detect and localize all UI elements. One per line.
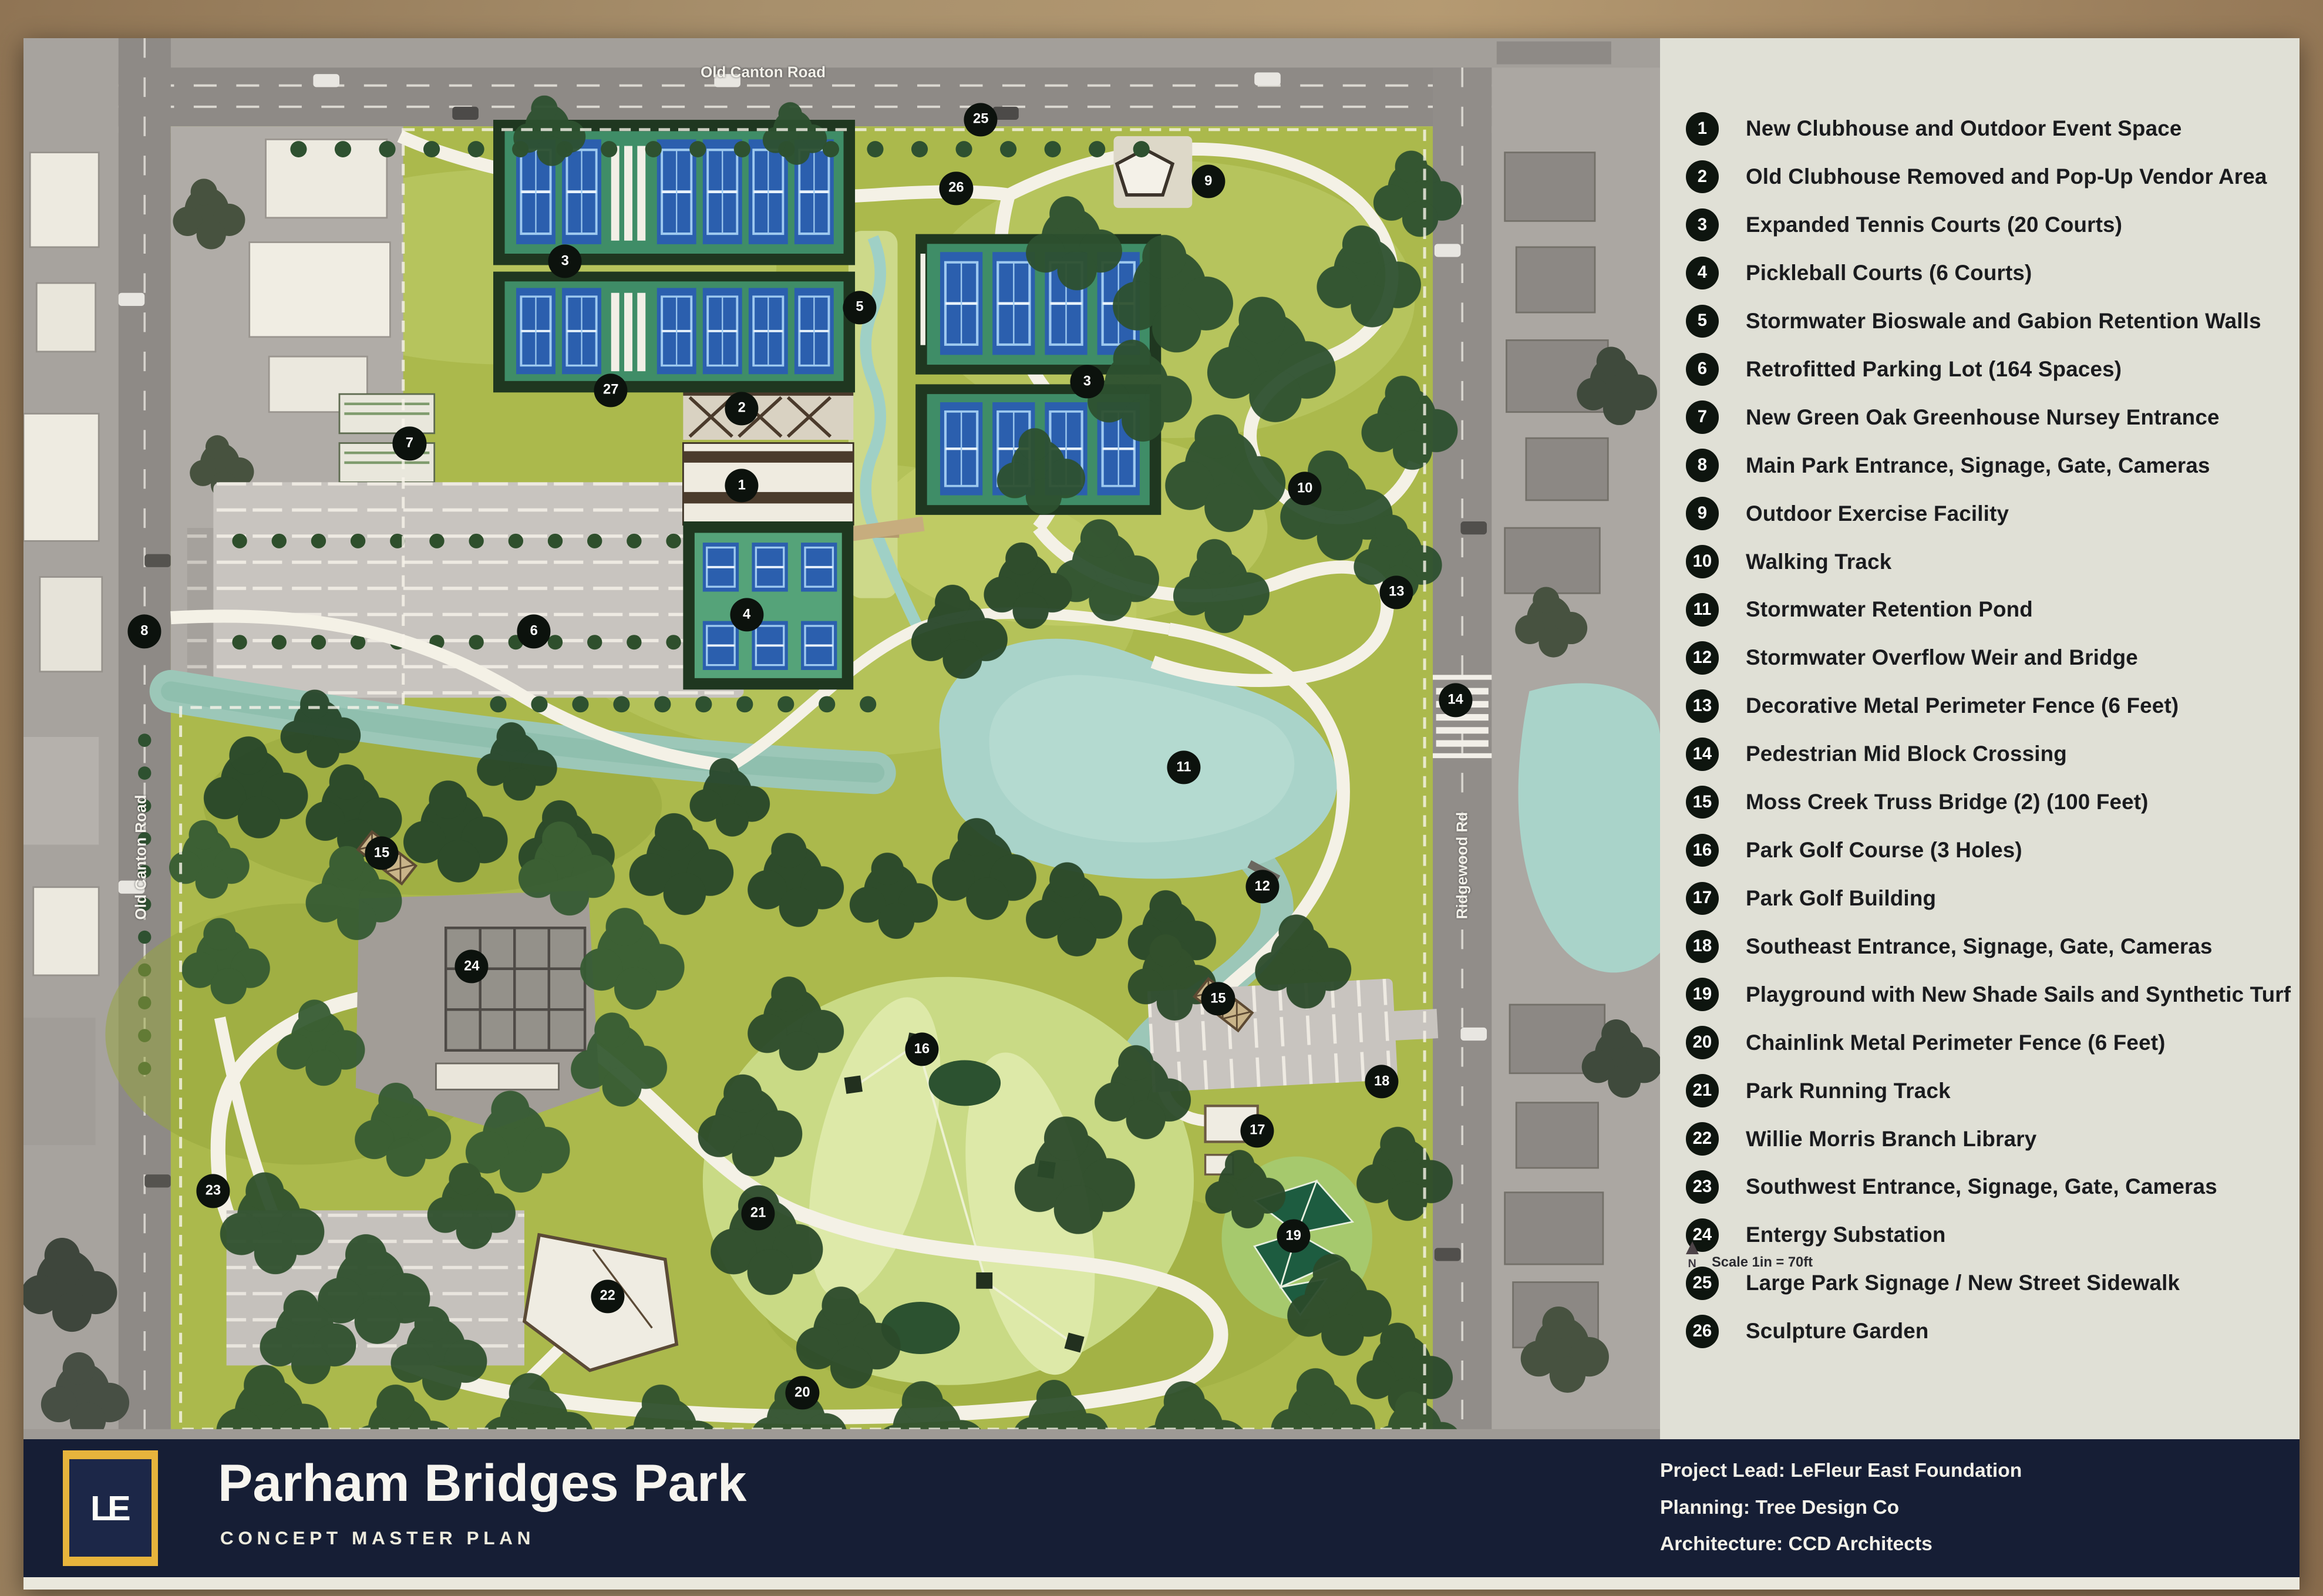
road-label: Old Canton Road bbox=[132, 794, 150, 920]
legend-item-number: 7 bbox=[1686, 400, 1719, 434]
legend-item-number: 14 bbox=[1686, 738, 1719, 771]
north-arrow-icon bbox=[1686, 1241, 1699, 1254]
new-clubhouse bbox=[683, 443, 853, 525]
poster-title: Parham Bridges Park bbox=[218, 1453, 746, 1513]
credit-line: Planning: Tree Design Co bbox=[1660, 1490, 2022, 1526]
legend-item-number: 2 bbox=[1686, 160, 1719, 194]
legend-item-number: 26 bbox=[1686, 1315, 1719, 1348]
map-marker-19: 19 bbox=[1277, 1219, 1310, 1252]
credit-line: Architecture: CCD Architects bbox=[1660, 1526, 2022, 1563]
concept-master-plan-poster: 1233456789101112131415151617181920212223… bbox=[23, 38, 2300, 1590]
legend-item: 21Park Running Track bbox=[1660, 1070, 2300, 1111]
project-credits: Project Lead: LeFleur East FoundationPla… bbox=[1660, 1453, 2022, 1563]
map-marker-6: 6 bbox=[517, 615, 551, 648]
legend-item: 23Southwest Entrance, Signage, Gate, Cam… bbox=[1660, 1167, 2300, 1207]
aerial-west-buildings bbox=[23, 38, 129, 1440]
north-label: N bbox=[1688, 1257, 1696, 1271]
legend-item-label: Southwest Entrance, Signage, Gate, Camer… bbox=[1746, 1174, 2217, 1199]
legend-item: 2Old Clubhouse Removed and Pop-Up Vendor… bbox=[1660, 157, 2300, 197]
legend-item-number: 18 bbox=[1686, 930, 1719, 964]
legend-item: 17Park Golf Building bbox=[1660, 878, 2300, 918]
legend-item: 13Decorative Metal Perimeter Fence (6 Fe… bbox=[1660, 686, 2300, 726]
map-marker-2: 2 bbox=[725, 392, 759, 425]
legend-item-number: 20 bbox=[1686, 1026, 1719, 1059]
legend-item: 16Park Golf Course (3 Holes) bbox=[1660, 830, 2300, 870]
legend-item: 26Sculpture Garden bbox=[1660, 1311, 2300, 1352]
legend-item-number: 15 bbox=[1686, 786, 1719, 819]
map-marker-26: 26 bbox=[940, 171, 973, 205]
map-marker-8: 8 bbox=[127, 615, 161, 648]
legend-item-label: Old Clubhouse Removed and Pop-Up Vendor … bbox=[1746, 164, 2267, 189]
map-marker-25: 25 bbox=[964, 103, 998, 136]
logo-monogram: LE bbox=[69, 1459, 151, 1557]
map-marker-16: 16 bbox=[905, 1033, 938, 1066]
legend-item-label: Playground with New Shade Sails and Synt… bbox=[1746, 982, 2291, 1007]
legend-item-number: 21 bbox=[1686, 1074, 1719, 1107]
legend-item: 15Moss Creek Truss Bridge (2) (100 Feet) bbox=[1660, 782, 2300, 822]
scale-label: Scale 1in = 70ft bbox=[1712, 1255, 1813, 1271]
map-marker-7: 7 bbox=[393, 427, 426, 460]
legend-item: 12Stormwater Overflow Weir and Bridge bbox=[1660, 638, 2300, 678]
map-marker-14: 14 bbox=[1439, 683, 1472, 717]
legend-item-label: Chainlink Metal Perimeter Fence (6 Feet) bbox=[1746, 1031, 2166, 1055]
legend-item: 3Expanded Tennis Courts (20 Courts) bbox=[1660, 204, 2300, 245]
map-marker-11: 11 bbox=[1167, 751, 1200, 784]
map-marker-13: 13 bbox=[1380, 575, 1413, 609]
legend-item: 10Walking Track bbox=[1660, 541, 2300, 582]
map-marker-10: 10 bbox=[1288, 472, 1322, 505]
legend-item-label: Expanded Tennis Courts (20 Courts) bbox=[1746, 213, 2122, 237]
legend-item-label: Main Park Entrance, Signage, Gate, Camer… bbox=[1746, 453, 2210, 478]
legend-item-label: Walking Track bbox=[1746, 550, 1891, 574]
legend-item-label: Willie Morris Branch Library bbox=[1746, 1127, 2036, 1151]
map-marker-18: 18 bbox=[1365, 1065, 1399, 1099]
legend-item-label: Stormwater Bioswale and Gabion Retention… bbox=[1746, 309, 2261, 334]
legend-item: 11Stormwater Retention Pond bbox=[1660, 590, 2300, 630]
map-marker-15: 15 bbox=[365, 836, 398, 870]
site-plan-map: 1233456789101112131415151617181920212223… bbox=[23, 38, 1660, 1440]
legend-item-number: 5 bbox=[1686, 305, 1719, 338]
legend-item: 6Retrofitted Parking Lot (164 Spaces) bbox=[1660, 349, 2300, 389]
legend-item: 1New Clubhouse and Outdoor Event Space bbox=[1660, 109, 2300, 149]
map-marker-12: 12 bbox=[1245, 870, 1279, 904]
legend-item-label: New Clubhouse and Outdoor Event Space bbox=[1746, 116, 2182, 141]
legend-item-number: 8 bbox=[1686, 449, 1719, 482]
legend-panel: 1New Clubhouse and Outdoor Event Space2O… bbox=[1660, 38, 2300, 1440]
legend-item-number: 4 bbox=[1686, 257, 1719, 290]
legend-item-number: 11 bbox=[1686, 593, 1719, 627]
legend-item-label: Sculpture Garden bbox=[1746, 1319, 1929, 1344]
map-marker-24: 24 bbox=[455, 950, 489, 984]
legend-item-number: 13 bbox=[1686, 689, 1719, 723]
poster-subtitle: CONCEPT MASTER PLAN bbox=[220, 1527, 535, 1549]
road-label: Ridgewood Rd bbox=[1453, 812, 1471, 920]
legend-item: 14Pedestrian Mid Block Crossing bbox=[1660, 734, 2300, 775]
site-plan-drawing bbox=[23, 38, 1660, 1440]
legend-item: 4Pickleball Courts (6 Courts) bbox=[1660, 252, 2300, 293]
legend-item-number: 22 bbox=[1686, 1122, 1719, 1156]
map-marker-20: 20 bbox=[786, 1376, 819, 1410]
legend-item-number: 1 bbox=[1686, 112, 1719, 146]
legend-item-label: Large Park Signage / New Street Sidewalk bbox=[1746, 1271, 2180, 1295]
aerial-east-neighborhood bbox=[1492, 68, 1660, 1440]
credit-line: Project Lead: LeFleur East Foundation bbox=[1660, 1453, 2022, 1489]
legend-item-number: 3 bbox=[1686, 208, 1719, 242]
legend-item-label: New Green Oak Greenhouse Nursey Entrance bbox=[1746, 405, 2220, 430]
map-marker-15: 15 bbox=[1201, 982, 1235, 1016]
title-bar: LE Parham Bridges Park CONCEPT MASTER PL… bbox=[23, 1439, 2300, 1577]
pop-up-vendor-area bbox=[683, 388, 853, 440]
legend-item-number: 25 bbox=[1686, 1267, 1719, 1300]
map-marker-23: 23 bbox=[196, 1174, 230, 1208]
legend-item: 20Chainlink Metal Perimeter Fence (6 Fee… bbox=[1660, 1022, 2300, 1063]
legend-item-label: Stormwater Overflow Weir and Bridge bbox=[1746, 645, 2138, 670]
legend-item-label: Decorative Metal Perimeter Fence (6 Feet… bbox=[1746, 693, 2179, 718]
legend-item-label: Retrofitted Parking Lot (164 Spaces) bbox=[1746, 357, 2122, 382]
map-marker-17: 17 bbox=[1241, 1114, 1274, 1147]
legend-item: 8Main Park Entrance, Signage, Gate, Came… bbox=[1660, 445, 2300, 486]
map-marker-22: 22 bbox=[591, 1280, 624, 1313]
legend-item-label: Pedestrian Mid Block Crossing bbox=[1746, 742, 2067, 766]
legend-item-label: Moss Creek Truss Bridge (2) (100 Feet) bbox=[1746, 790, 2149, 814]
legend-item: 5Stormwater Bioswale and Gabion Retentio… bbox=[1660, 301, 2300, 341]
map-marker-4: 4 bbox=[730, 598, 763, 631]
legend-item: 7New Green Oak Greenhouse Nursey Entranc… bbox=[1660, 397, 2300, 437]
map-marker-21: 21 bbox=[742, 1197, 775, 1230]
legend-item: 9Outdoor Exercise Facility bbox=[1660, 493, 2300, 534]
legend-item-label: Southeast Entrance, Signage, Gate, Camer… bbox=[1746, 934, 2213, 959]
legend-item: 22Willie Morris Branch Library bbox=[1660, 1119, 2300, 1159]
outdoor-exercise-facility bbox=[1113, 136, 1192, 208]
legend-item-number: 12 bbox=[1686, 641, 1719, 675]
legend-item-label: Pickleball Courts (6 Courts) bbox=[1746, 261, 2032, 285]
legend-item-number: 19 bbox=[1686, 978, 1719, 1011]
legend-item-number: 6 bbox=[1686, 353, 1719, 386]
legend-item-label: Park Golf Course (3 Holes) bbox=[1746, 838, 2022, 863]
legend-item-number: 9 bbox=[1686, 497, 1719, 530]
map-marker-5: 5 bbox=[843, 291, 876, 324]
legend-item-label: Park Running Track bbox=[1746, 1079, 1951, 1103]
road-old-canton-left bbox=[118, 38, 170, 1440]
scale-row: N Scale 1in = 70ft bbox=[1686, 1241, 1813, 1271]
lefleur-east-logo: LE bbox=[63, 1450, 158, 1567]
map-marker-9: 9 bbox=[1191, 164, 1225, 198]
legend-item-number: 17 bbox=[1686, 882, 1719, 915]
map-marker-3: 3 bbox=[548, 244, 582, 278]
map-marker-3: 3 bbox=[1070, 365, 1104, 399]
legend-item: 18Southeast Entrance, Signage, Gate, Cam… bbox=[1660, 926, 2300, 967]
road-label: Old Canton Road bbox=[701, 63, 826, 81]
legend-item-number: 10 bbox=[1686, 545, 1719, 578]
map-marker-1: 1 bbox=[725, 469, 759, 503]
north-indicator: N bbox=[1686, 1241, 1699, 1271]
legend-item: 19Playground with New Shade Sails and Sy… bbox=[1660, 974, 2300, 1015]
legend-item-number: 23 bbox=[1686, 1170, 1719, 1204]
legend-item-label: Stormwater Retention Pond bbox=[1746, 597, 2033, 622]
legend-item-label: Outdoor Exercise Facility bbox=[1746, 501, 2009, 526]
map-marker-27: 27 bbox=[594, 373, 628, 407]
pickleball-courts bbox=[683, 521, 853, 689]
legend-item-number: 16 bbox=[1686, 834, 1719, 867]
legend-item-label: Park Golf Building bbox=[1746, 886, 1936, 911]
